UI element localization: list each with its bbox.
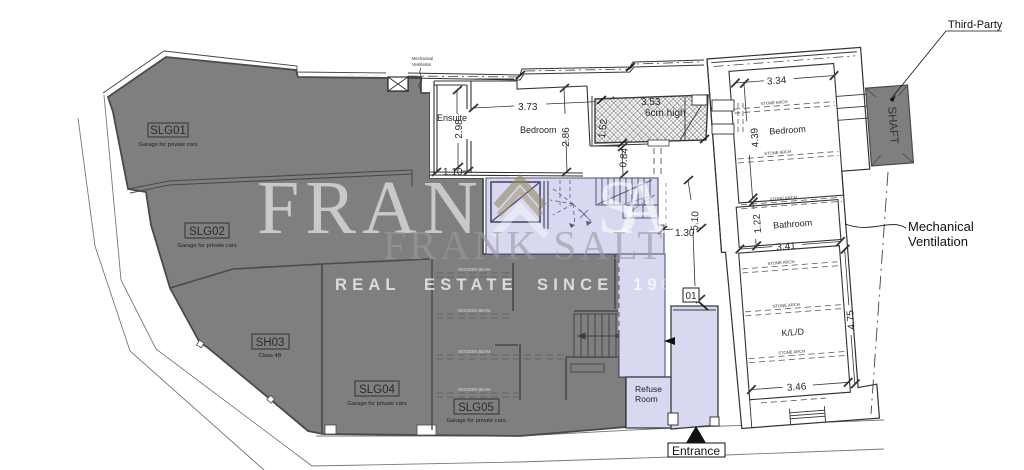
svg-text:Class 4B: Class 4B: [258, 353, 281, 359]
svg-text:3.53: 3.53: [641, 97, 661, 108]
svg-text:Third-Party: Third-Party: [948, 19, 1003, 31]
svg-text:Mechanical: Mechanical: [412, 56, 433, 61]
svg-text:SLG04: SLG04: [359, 384, 395, 396]
svg-text:SLG05: SLG05: [458, 402, 494, 414]
svg-text:Room: Room: [635, 394, 658, 404]
svg-text:ESTATE: ESTATE: [424, 276, 518, 294]
svg-text:19: 19: [633, 276, 662, 294]
svg-text:SH03: SH03: [256, 337, 285, 349]
svg-text:WOODEN BEAM: WOODEN BEAM: [458, 308, 491, 313]
svg-text:Ventilation: Ventilation: [412, 62, 432, 67]
svg-text:WOODEN BEAM: WOODEN BEAM: [458, 387, 491, 392]
svg-text:Refuse: Refuse: [635, 384, 662, 394]
svg-text:REAL: REAL: [335, 276, 401, 294]
svg-text:Bedroom: Bedroom: [520, 125, 557, 135]
svg-text:6cm high: 6cm high: [645, 108, 686, 119]
svg-text:2.86: 2.86: [561, 127, 572, 147]
svg-text:3.41: 3.41: [776, 241, 797, 253]
svg-text:Garage for private cars: Garage for private cars: [177, 243, 236, 249]
svg-text:FRANK SALT: FRANK SALT: [383, 222, 666, 268]
svg-text:4.75: 4.75: [845, 309, 857, 330]
svg-text:3.46: 3.46: [787, 381, 808, 393]
svg-text:69: 69: [661, 276, 690, 294]
svg-text:3.34: 3.34: [766, 75, 787, 87]
svg-text:WOODEN BEAM: WOODEN BEAM: [458, 349, 491, 354]
svg-text:Mechanical: Mechanical: [908, 219, 974, 234]
svg-text:0.84: 0.84: [618, 147, 631, 168]
svg-text:Entrance: Entrance: [672, 444, 720, 458]
svg-text:4.39: 4.39: [749, 127, 761, 148]
svg-text:SLG01: SLG01: [150, 125, 186, 137]
svg-text:SINCE: SINCE: [537, 276, 613, 294]
svg-text:Garage for private cars: Garage for private cars: [138, 142, 197, 148]
svg-text:SLG02: SLG02: [189, 226, 225, 238]
svg-text:1.30: 1.30: [675, 228, 695, 239]
svg-text:Ventilation: Ventilation: [908, 234, 968, 249]
svg-text:3.73: 3.73: [518, 102, 538, 113]
svg-text:Garage for private cars: Garage for private cars: [446, 418, 505, 424]
svg-text:Garage for private cars: Garage for private cars: [347, 401, 406, 407]
svg-text:K/L/D: K/L/D: [781, 326, 805, 338]
svg-text:2.98: 2.98: [454, 119, 465, 139]
svg-text:1.22: 1.22: [752, 213, 764, 234]
